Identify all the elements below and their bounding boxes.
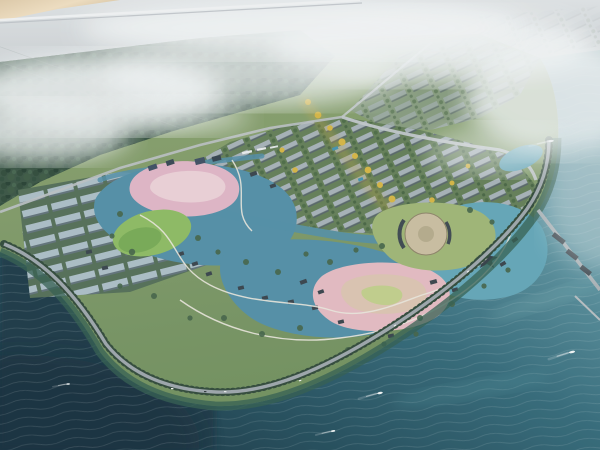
photo-wash — [0, 0, 600, 450]
photo-of-masterplan-rendering — [0, 0, 600, 450]
